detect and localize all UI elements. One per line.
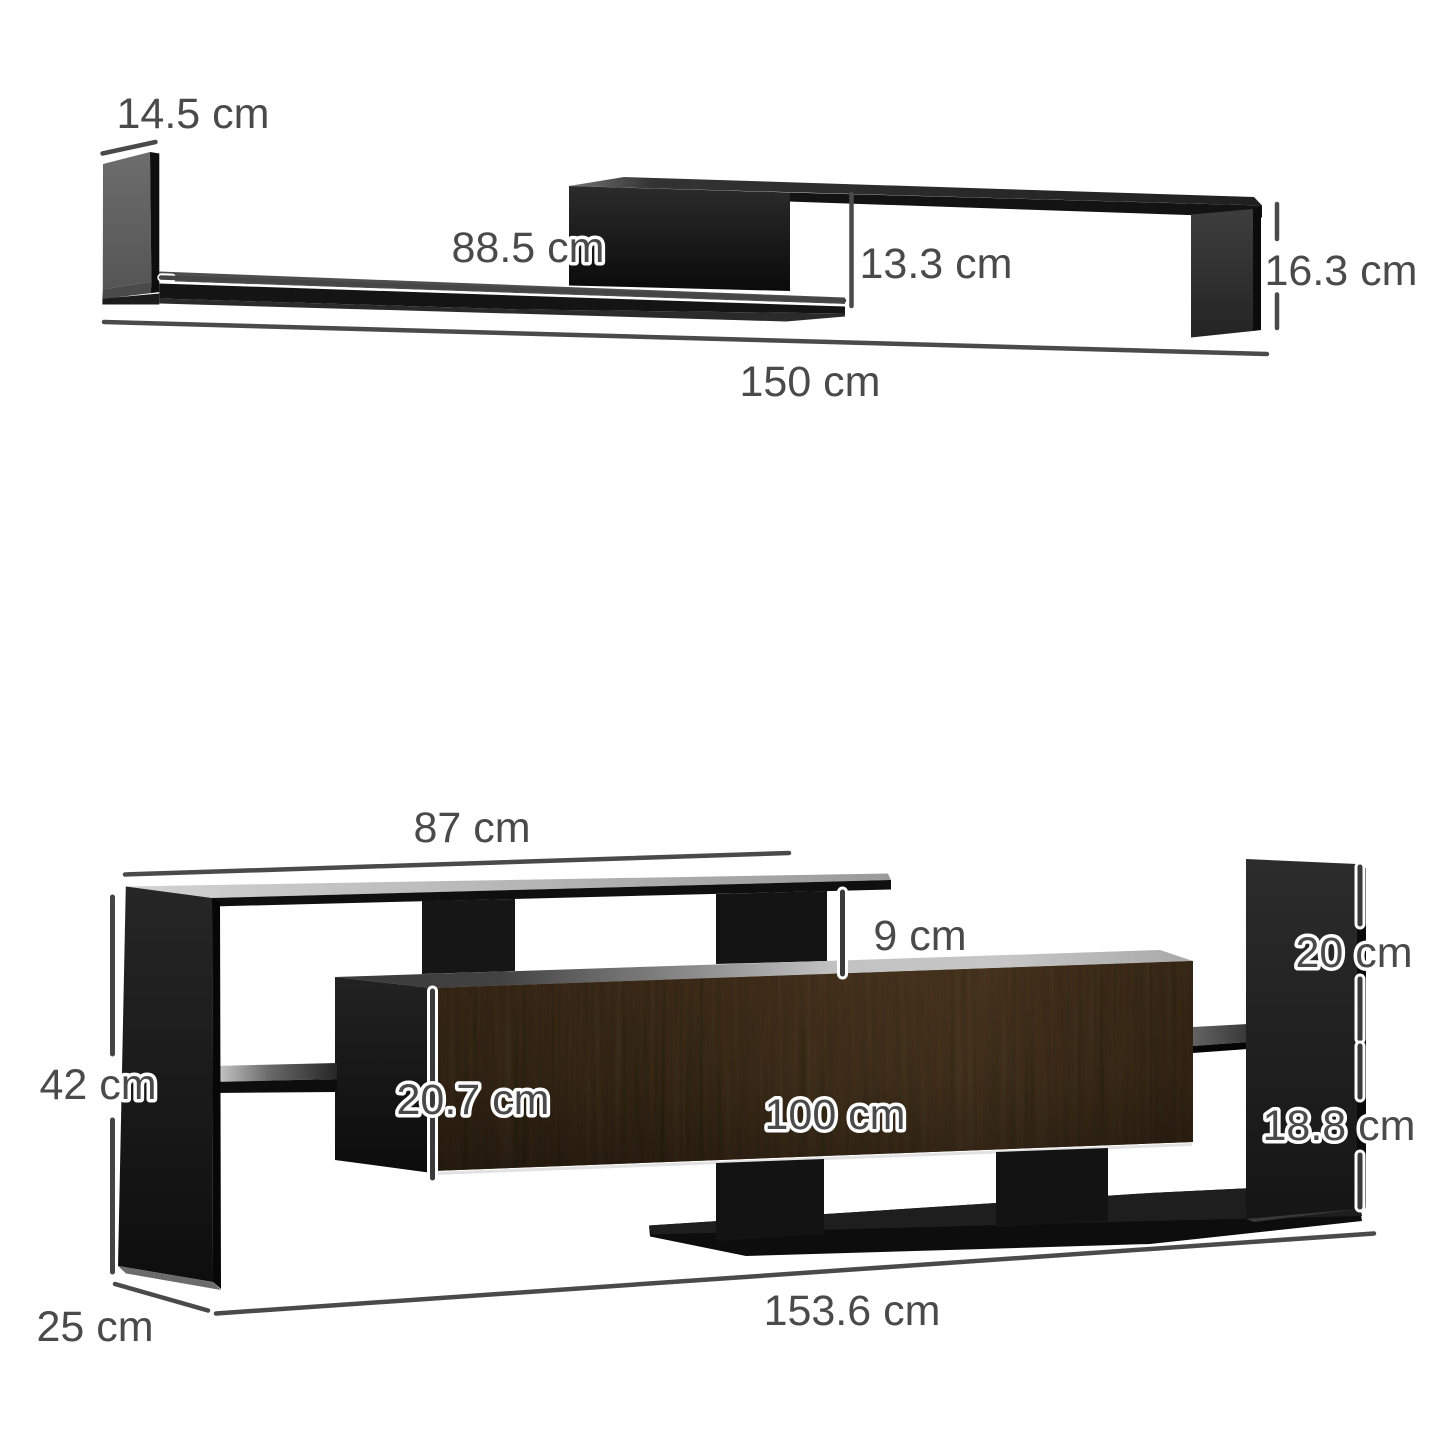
svg-text:87 cm: 87 cm xyxy=(413,804,530,852)
svg-text:20.7 cm: 20.7 cm xyxy=(397,1076,550,1124)
svg-text:16.3 cm: 16.3 cm xyxy=(1265,247,1418,295)
svg-text:25 cm: 25 cm xyxy=(36,1303,153,1351)
svg-text:150 cm: 150 cm xyxy=(739,358,880,406)
svg-text:14.5 cm: 14.5 cm xyxy=(117,90,270,138)
svg-text:18.8 cm: 18.8 cm xyxy=(1263,1102,1416,1150)
svg-text:153.6 cm: 153.6 cm xyxy=(764,1287,941,1335)
svg-text:42 cm: 42 cm xyxy=(39,1061,156,1109)
svg-text:9 cm: 9 cm xyxy=(873,912,966,960)
svg-text:100 cm: 100 cm xyxy=(764,1091,905,1139)
svg-text:88.5 cm: 88.5 cm xyxy=(452,224,605,272)
svg-text:13.3 cm: 13.3 cm xyxy=(860,240,1013,288)
svg-text:20 cm: 20 cm xyxy=(1295,929,1412,977)
